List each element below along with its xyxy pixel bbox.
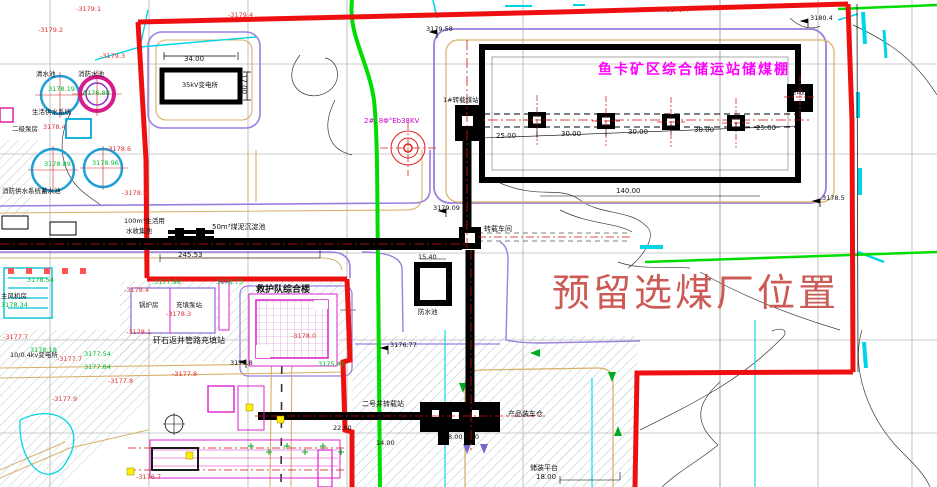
cad-site-plan-viewport[interactable]: 鱼卡矿区综合储运站储煤棚预留选煤厂位置35kV变电所清水池消防水池生活供水系统二… <box>0 0 937 487</box>
shed-support-towers <box>523 75 816 148</box>
substation-building <box>162 52 251 102</box>
boiler-backfill-block <box>131 282 229 333</box>
fire-pool-400 <box>417 259 449 303</box>
water-tanks <box>28 70 128 192</box>
borehole-target <box>380 122 436 176</box>
rescue-building-block <box>249 294 337 366</box>
machinery-yard <box>127 386 345 487</box>
coal-shed-building <box>470 47 810 180</box>
cad-linework <box>0 0 937 487</box>
